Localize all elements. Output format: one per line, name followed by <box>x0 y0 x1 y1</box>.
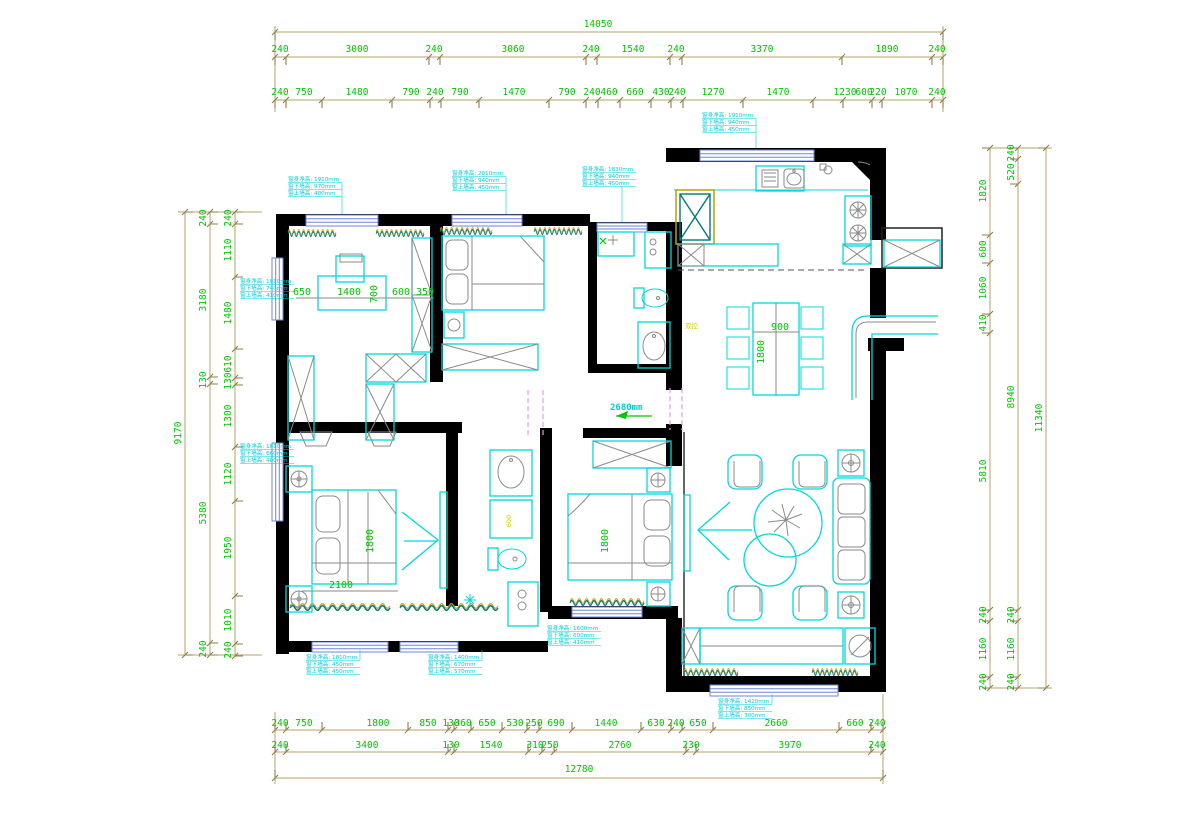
svg-text:2760: 2760 <box>609 740 632 751</box>
nightstand-lamp <box>647 468 670 492</box>
dim-col-right-middle: 240 520 8940 240 1160 240 <box>1006 144 1017 690</box>
svg-text:1950: 1950 <box>223 536 234 559</box>
svg-text:630: 630 <box>647 718 664 729</box>
svg-text:窗身净高: 1420mm: 窗身净高: 1420mm <box>718 697 769 705</box>
master-bedroom <box>286 432 447 612</box>
svg-text:240: 240 <box>198 640 209 657</box>
svg-text:1160: 1160 <box>1006 637 1017 660</box>
tv-panel <box>440 492 447 588</box>
dim-label: 12780 <box>565 764 594 775</box>
armchair <box>728 455 762 489</box>
armchair <box>728 586 762 620</box>
svg-text:1470: 1470 <box>503 87 526 98</box>
bedroom2 <box>442 236 544 370</box>
dimension-chain-left: 9170 240 3180 130 5380 240 240 1110 1480… <box>173 209 262 659</box>
svg-text:790: 790 <box>451 87 468 98</box>
svg-text:690: 690 <box>547 718 564 729</box>
toilet-bowl <box>642 289 668 307</box>
svg-text:1160: 1160 <box>978 637 989 660</box>
window <box>452 215 522 226</box>
svg-text:窗身净高: 1810mm: 窗身净高: 1810mm <box>240 442 291 450</box>
svg-text:窗下墙高: 670mm: 窗下墙高: 670mm <box>428 660 476 668</box>
floor-plan-canvas: 14050 240 3000 240 3060 240 1540 240 337… <box>0 0 1200 813</box>
chair <box>801 307 823 329</box>
svg-text:1820: 1820 <box>978 179 989 202</box>
svg-text:240: 240 <box>271 44 288 55</box>
svg-text:窗上墙高: 410mm: 窗上墙高: 410mm <box>240 291 288 299</box>
dim-label: 9170 <box>173 421 184 444</box>
svg-text:240: 240 <box>426 87 443 98</box>
window-annotation: 窗身净高: 1400mm 窗下墙高: 670mm 窗上墙高: 570mm <box>428 650 482 675</box>
bed <box>568 494 672 580</box>
svg-text:240: 240 <box>978 606 989 623</box>
window <box>312 642 388 652</box>
svg-text:240: 240 <box>928 44 945 55</box>
svg-text:3970: 3970 <box>779 740 802 751</box>
svg-text:5380: 5380 <box>198 501 209 524</box>
svg-text:窗下墙高: 940mm: 窗下墙高: 940mm <box>452 176 500 184</box>
svg-text:窗下墙高: 600mm: 窗下墙高: 600mm <box>547 631 595 639</box>
svg-text:2660: 2660 <box>765 718 788 729</box>
svg-text:240: 240 <box>583 87 600 98</box>
shower-unit <box>508 582 538 626</box>
svg-text:1300: 1300 <box>223 404 234 427</box>
svg-text:850: 850 <box>419 718 436 729</box>
window <box>700 150 814 161</box>
svg-text:650: 650 <box>689 718 706 729</box>
washbasin <box>490 450 532 496</box>
svg-text:530: 530 <box>506 718 523 729</box>
rug <box>744 534 796 586</box>
study-dim: 600 <box>392 287 410 298</box>
svg-text:250: 250 <box>525 718 542 729</box>
window-annotation: 窗身净高: 2010mm 窗下墙高: 940mm 窗上墙高: 450mm <box>452 169 506 214</box>
svg-text:窗上墙高: 400mm: 窗上墙高: 400mm <box>240 456 288 464</box>
svg-text:240: 240 <box>1006 144 1017 161</box>
corner-counter <box>852 316 938 400</box>
switch-label: 双控 <box>685 321 699 330</box>
svg-text:1540: 1540 <box>622 44 645 55</box>
svg-text:750: 750 <box>295 87 312 98</box>
svg-text:650: 650 <box>478 718 495 729</box>
svg-text:130: 130 <box>198 371 209 388</box>
bathroom-main <box>598 232 671 368</box>
master-dim: 1800 <box>365 529 376 553</box>
bed <box>312 490 396 584</box>
svg-text:240: 240 <box>868 740 885 751</box>
svg-text:240: 240 <box>582 44 599 55</box>
window <box>306 215 378 226</box>
window <box>572 607 642 617</box>
study-dim: 700 <box>369 285 380 303</box>
svg-text:360: 360 <box>454 718 471 729</box>
plant <box>768 504 802 536</box>
tv-arrow <box>698 502 752 560</box>
svg-text:3180: 3180 <box>198 288 209 311</box>
svg-text:220: 220 <box>869 87 886 98</box>
svg-text:窗身净高: 1810mm: 窗身净高: 1810mm <box>240 277 291 285</box>
svg-text:窗上墙高: 450mm: 窗上墙高: 450mm <box>452 183 500 191</box>
svg-text:240: 240 <box>1006 673 1017 690</box>
rug <box>754 489 822 557</box>
svg-text:1110: 1110 <box>223 238 234 261</box>
svg-text:130: 130 <box>442 740 459 751</box>
bedroom3 <box>568 441 672 606</box>
svg-text:240: 240 <box>271 740 288 751</box>
bathroom2 <box>464 450 538 626</box>
svg-text:1230: 1230 <box>834 87 857 98</box>
window-annotation: 窗身净高: 1830mm 窗下墙高: 940mm 窗上墙高: 450mm <box>582 165 636 222</box>
side-table-lamp <box>838 450 864 476</box>
svg-text:1270: 1270 <box>702 87 725 98</box>
svg-text:窗上墙高: 570mm: 窗上墙高: 570mm <box>428 667 476 675</box>
svg-text:1010: 1010 <box>223 608 234 631</box>
window-annotation: 窗身净高: 1600mm 窗下墙高: 600mm 窗上墙高: 410mm <box>547 624 601 646</box>
svg-text:240: 240 <box>978 673 989 690</box>
study-dim: 650 <box>293 287 311 298</box>
ac-platform <box>882 228 942 268</box>
dim-col-right-inner: 1820 600 1060 410 5810 240 1160 240 <box>978 179 989 690</box>
svg-text:1480: 1480 <box>346 87 369 98</box>
svg-text:1480: 1480 <box>223 301 234 324</box>
study-room <box>288 238 434 440</box>
svg-text:窗下墙高: 850mm: 窗下墙高: 850mm <box>718 704 766 712</box>
dining-dim: 900 <box>771 322 789 333</box>
dim-label: 14050 <box>584 19 613 30</box>
chair <box>727 367 749 389</box>
svg-text:240: 240 <box>667 44 684 55</box>
svg-text:窗上墙高: 300mm: 窗上墙高: 300mm <box>718 711 766 719</box>
window-annotation: 窗身净高: 1810mm 窗下墙高: 450mm 窗上墙高: 450mm <box>306 650 360 675</box>
kitchen <box>674 164 940 270</box>
svg-text:240: 240 <box>198 209 209 226</box>
window-annotation: 窗身净高: 1910mm 窗下墙高: 970mm 窗上墙高: 400mm <box>288 175 342 214</box>
washbasin-counter <box>598 232 634 256</box>
dim-label: 11340 <box>1034 403 1045 432</box>
svg-text:240: 240 <box>668 87 685 98</box>
hanger <box>300 432 332 446</box>
svg-text:240: 240 <box>667 718 684 729</box>
toilet <box>488 548 526 570</box>
bed <box>442 236 544 310</box>
chair <box>727 337 749 359</box>
svg-text:3400: 3400 <box>356 740 379 751</box>
svg-text:窗身净高: 1600mm: 窗身净高: 1600mm <box>547 624 598 632</box>
svg-text:1070: 1070 <box>895 87 918 98</box>
svg-text:520: 520 <box>1006 163 1017 180</box>
nightstand-lamp <box>647 582 670 606</box>
study-dim: 350 <box>416 287 434 298</box>
window-annotation: 窗身净高: 1810mm 窗下墙高: 740mm 窗上墙高: 410mm <box>240 277 294 299</box>
dim-row-bottom1: 240 750 1800 850 130 360 650 530 250 690… <box>271 718 885 729</box>
svg-text:窗身净高: 1810mm: 窗身净高: 1810mm <box>306 653 357 661</box>
svg-text:790: 790 <box>558 87 575 98</box>
svg-text:250: 250 <box>541 740 558 751</box>
svg-text:130: 130 <box>223 372 234 389</box>
svg-text:1120: 1120 <box>223 462 234 485</box>
dim-row-top3: 240 750 1480 790 240 790 1470 790 240 46… <box>271 87 945 98</box>
floor-plan-drawing: 14050 240 3000 240 3060 240 1540 240 337… <box>0 0 1200 813</box>
living-room <box>682 450 875 664</box>
svg-text:240: 240 <box>223 209 234 226</box>
svg-text:460: 460 <box>600 87 617 98</box>
window <box>597 223 647 232</box>
dimension-chain-bottom: 12780 240 750 1800 850 130 360 650 530 2… <box>271 694 886 784</box>
cabinet <box>366 354 426 382</box>
svg-text:3000: 3000 <box>346 44 369 55</box>
tv-panel <box>684 495 690 571</box>
svg-text:窗身净高: 1910mm: 窗身净高: 1910mm <box>288 175 339 183</box>
svg-text:1440: 1440 <box>595 718 618 729</box>
svg-text:240: 240 <box>271 718 288 729</box>
svg-text:窗上墙高: 410mm: 窗上墙高: 410mm <box>547 638 595 646</box>
svg-text:240: 240 <box>868 718 885 729</box>
svg-text:240: 240 <box>425 44 442 55</box>
armchair <box>793 586 827 620</box>
svg-text:610: 610 <box>223 355 234 372</box>
tv-arrow <box>402 512 438 570</box>
dimension-chain-right: 11340 1820 600 1060 410 5810 240 1160 24… <box>978 144 1052 691</box>
bedroom3-dim: 1800 <box>600 529 611 553</box>
hanger <box>368 432 396 446</box>
chair <box>727 307 749 329</box>
svg-text:430: 430 <box>652 87 669 98</box>
svg-text:窗下墙高: 940mm: 窗下墙高: 940mm <box>582 172 630 180</box>
svg-text:410: 410 <box>978 314 989 331</box>
svg-text:窗身净高: 1400mm: 窗身净高: 1400mm <box>428 653 479 661</box>
chair <box>801 337 823 359</box>
nightstand-lamp <box>286 466 312 492</box>
svg-text:窗下墙高: 660mm: 窗下墙高: 660mm <box>240 449 288 457</box>
svg-text:240: 240 <box>271 87 288 98</box>
dim-row-bottom2: 240 3400 130 1540 310 250 2760 230 3970 … <box>271 740 885 751</box>
master-dim: 2100 <box>329 580 353 591</box>
sofa <box>833 478 870 584</box>
svg-text:窗上墙高: 400mm: 窗上墙高: 400mm <box>288 189 336 197</box>
window-annotation: 窗身净高: 1910mm 窗下墙高: 940mm 窗上墙高: 450mm <box>702 111 756 148</box>
svg-text:窗下墙高: 450mm: 窗下墙高: 450mm <box>306 660 354 668</box>
window <box>710 685 838 696</box>
svg-text:750: 750 <box>295 718 312 729</box>
svg-text:窗上墙高: 450mm: 窗上墙高: 450mm <box>582 179 630 187</box>
svg-text:窗身净高: 1910mm: 窗身净高: 1910mm <box>702 111 753 119</box>
dim-row-top2: 240 3000 240 3060 240 1540 240 3370 1890… <box>271 44 945 55</box>
svg-text:1060: 1060 <box>978 276 989 299</box>
window-annotation: 窗身净高: 1810mm 窗下墙高: 660mm 窗上墙高: 400mm <box>240 442 294 464</box>
svg-text:1470: 1470 <box>767 87 790 98</box>
svg-text:660: 660 <box>626 87 643 98</box>
dim-col-left-inner: 240 1110 1480 610 130 1300 1120 1950 101… <box>223 209 234 658</box>
svg-text:240: 240 <box>928 87 945 98</box>
svg-text:窗下墙高: 940mm: 窗下墙高: 940mm <box>702 118 750 126</box>
window <box>400 642 458 652</box>
svg-text:窗上墙高: 450mm: 窗上墙高: 450mm <box>306 667 354 675</box>
svg-text:1540: 1540 <box>480 740 503 751</box>
svg-text:窗上墙高: 450mm: 窗上墙高: 450mm <box>702 125 750 133</box>
armchair <box>793 455 827 489</box>
svg-text:5810: 5810 <box>978 459 989 482</box>
svg-text:790: 790 <box>402 87 419 98</box>
bath-depth-label: 600 <box>505 515 513 527</box>
svg-text:660: 660 <box>846 718 863 729</box>
chair <box>801 367 823 389</box>
svg-text:窗下墙高: 970mm: 窗下墙高: 970mm <box>288 182 336 190</box>
svg-text:8940: 8940 <box>1006 385 1017 408</box>
kitchen-counter <box>678 244 778 266</box>
svg-text:240: 240 <box>223 641 234 658</box>
svg-text:230: 230 <box>682 740 699 751</box>
svg-text:3060: 3060 <box>502 44 525 55</box>
side-table-lamp <box>838 592 864 618</box>
study-dim: 1400 <box>337 287 361 298</box>
svg-text:窗身净高: 2010mm: 窗身净高: 2010mm <box>452 169 503 177</box>
nightstand <box>444 312 464 338</box>
svg-text:3370: 3370 <box>751 44 774 55</box>
svg-text:窗身净高: 1830mm: 窗身净高: 1830mm <box>582 165 633 173</box>
dining-dim: 1800 <box>756 340 767 364</box>
svg-text:1890: 1890 <box>876 44 899 55</box>
window-annotation: 窗身净高: 1420mm 窗下墙高: 850mm 窗上墙高: 300mm <box>718 694 772 719</box>
corridor-width-label: 2680mm <box>610 403 643 413</box>
dim-col-left-outer: 240 3180 130 5380 240 <box>198 209 209 657</box>
dimension-chain-top: 14050 240 3000 240 3060 240 1540 240 337… <box>271 19 946 112</box>
svg-text:240: 240 <box>1006 606 1017 623</box>
svg-text:1800: 1800 <box>367 718 390 729</box>
svg-text:窗下墙高: 740mm: 窗下墙高: 740mm <box>240 284 288 292</box>
svg-text:600: 600 <box>978 240 989 257</box>
floor-drain <box>464 594 476 606</box>
